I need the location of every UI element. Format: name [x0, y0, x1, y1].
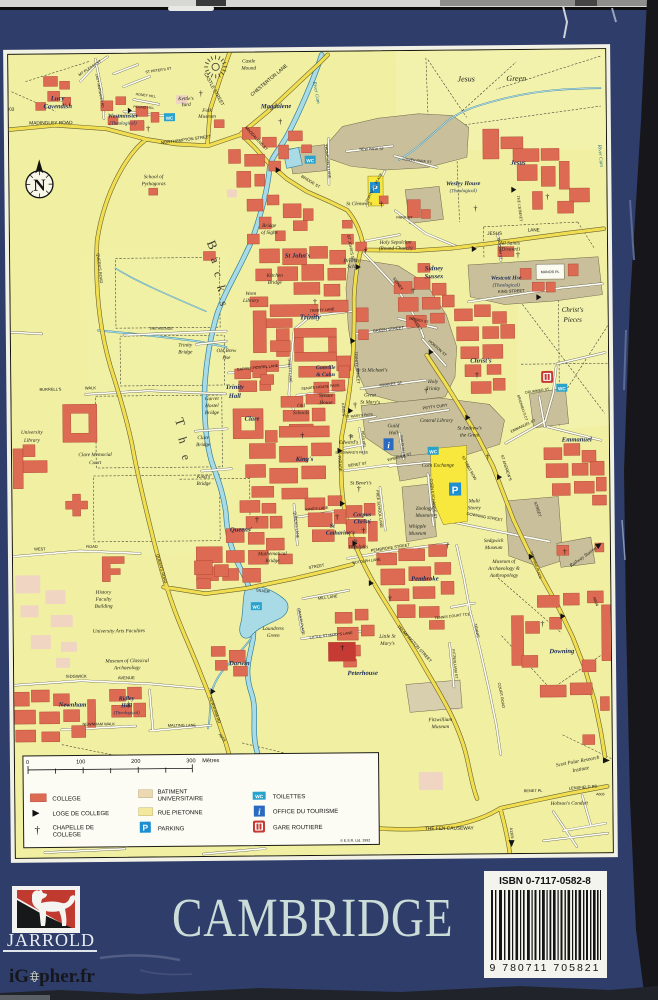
svg-text:COLLEGE: COLLEGE — [53, 832, 81, 838]
svg-text:Downing: Downing — [548, 648, 575, 655]
svg-text:†: † — [199, 89, 203, 98]
svg-text:Gonville: Gonville — [316, 365, 336, 371]
svg-text:History: History — [95, 590, 112, 596]
svg-text:Edward's: Edward's — [338, 440, 358, 446]
svg-text:House: House — [318, 400, 333, 406]
svg-text:BURRELL'S: BURRELL'S — [39, 387, 61, 392]
svg-text:†: † — [340, 643, 344, 652]
svg-text:†: † — [540, 619, 544, 628]
svg-text:Museum: Museum — [431, 724, 450, 730]
svg-text:LANE: LANE — [528, 227, 540, 232]
svg-text:Library: Library — [23, 438, 41, 444]
svg-text:SIDGWICK: SIDGWICK — [66, 674, 87, 679]
svg-text:Multi: Multi — [468, 498, 481, 504]
svg-text:(Disused): (Disused) — [500, 245, 521, 252]
svg-text:Jesus: Jesus — [457, 74, 474, 83]
svg-text:†: † — [300, 431, 304, 440]
svg-text:Museum: Museum — [197, 114, 216, 120]
svg-text:Castle: Castle — [242, 58, 256, 64]
svg-text:Wren: Wren — [245, 291, 256, 297]
svg-text:BENET PL: BENET PL — [524, 788, 544, 793]
svg-text:OFFICE DU TOURISME: OFFICE DU TOURISME — [273, 809, 338, 816]
svg-text:(Theological): (Theological) — [450, 189, 478, 194]
svg-text:St John's: St John's — [285, 252, 311, 259]
svg-text:Darwin: Darwin — [228, 660, 250, 667]
svg-text:PARADE: PARADE — [337, 455, 343, 472]
svg-text:†: † — [486, 452, 490, 461]
svg-text:†: † — [388, 594, 392, 603]
svg-text:WALK: WALK — [85, 385, 97, 390]
svg-text:†: † — [361, 526, 365, 535]
svg-text:Sedgwick: Sedgwick — [484, 538, 504, 544]
svg-text:Museum of: Museum of — [491, 558, 517, 565]
svg-text:Wesley House: Wesley House — [446, 181, 481, 187]
svg-text:Whipple: Whipple — [409, 524, 427, 530]
svg-text:Christ's: Christ's — [562, 306, 584, 314]
svg-text:University Arts Faculties: University Arts Faculties — [93, 628, 145, 634]
svg-text:St Andrew's: St Andrew's — [457, 425, 481, 431]
svg-text:Christi: Christi — [354, 519, 371, 525]
svg-text:Peterhouse: Peterhouse — [347, 670, 378, 677]
svg-text:Garret: Garret — [205, 396, 220, 402]
svg-text:Central Library: Central Library — [420, 418, 454, 424]
svg-text:Zoology: Zoology — [416, 506, 434, 512]
svg-text:A1303: A1303 — [8, 107, 15, 112]
svg-text:CHAPELLE DE: CHAPELLE DE — [53, 825, 94, 831]
svg-text:WEST: WEST — [34, 546, 46, 551]
svg-text:Lucy: Lucy — [50, 95, 65, 102]
svg-text:Corn Exchange: Corn Exchange — [422, 463, 455, 469]
svg-text:St Clement's: St Clement's — [346, 201, 372, 207]
svg-text:Green: Green — [506, 74, 526, 83]
svg-text:†: † — [146, 124, 150, 133]
svg-text:(Theological): (Theological) — [114, 711, 141, 716]
svg-text:Bridge: Bridge — [265, 558, 280, 564]
svg-text:Clare: Clare — [197, 435, 209, 441]
svg-text:Fitzwilliam: Fitzwilliam — [427, 717, 452, 723]
svg-text:Pieces: Pieces — [562, 316, 582, 324]
svg-text:†: † — [563, 547, 567, 556]
svg-text:MALTING LANE: MALTING LANE — [168, 722, 197, 727]
svg-text:WC: WC — [429, 449, 437, 454]
svg-text:N: N — [33, 176, 46, 195]
svg-text:Cavendish: Cavendish — [43, 103, 72, 110]
svg-text:Old Brew: Old Brew — [216, 348, 236, 354]
svg-text:ISBN 0-7117-0582-8: ISBN 0-7117-0582-8 — [499, 876, 591, 887]
svg-text:Great: Great — [364, 393, 377, 399]
svg-text:AVENUE: AVENUE — [118, 675, 135, 680]
svg-text:Hostel: Hostel — [204, 403, 219, 409]
svg-text:NEW PARK ST: NEW PARK ST — [359, 147, 384, 151]
svg-text:Guild: Guild — [387, 423, 399, 429]
svg-text:Archaeology: Archaeology — [113, 665, 141, 671]
svg-text:Laundress: Laundress — [261, 626, 284, 632]
svg-text:Hall: Hall — [388, 430, 399, 436]
svg-text:WC: WC — [255, 794, 264, 800]
svg-text:9 780711 705821: 9 780711 705821 — [490, 962, 601, 974]
svg-text:NEWNHAM WALK: NEWNHAM WALK — [82, 721, 115, 726]
svg-text:Hse: Hse — [221, 355, 231, 361]
svg-text:†: † — [475, 371, 479, 380]
svg-text:Archaeology &: Archaeology & — [487, 566, 521, 572]
svg-text:Sidney: Sidney — [425, 265, 443, 272]
svg-text:A603: A603 — [596, 792, 604, 796]
svg-text:Hall: Hall — [228, 393, 241, 400]
svg-text:Yard: Yard — [181, 102, 191, 108]
svg-text:†: † — [335, 513, 339, 522]
svg-text:ST EDWARD'S PASS: ST EDWARD'S PASS — [335, 450, 369, 454]
svg-text:BATIMENT: BATIMENT — [157, 789, 187, 795]
svg-text:(Theological): (Theological) — [493, 283, 521, 288]
svg-text:LOGE DE COLLEGE: LOGE DE COLLEGE — [52, 811, 109, 818]
svg-text:WC: WC — [166, 116, 174, 121]
svg-text:& Caius: & Caius — [316, 372, 335, 378]
svg-text:Clare: Clare — [245, 416, 260, 423]
svg-text:Trinity: Trinity — [225, 384, 244, 391]
svg-text:St: St — [330, 524, 335, 530]
svg-text:Museum: Museum — [408, 531, 427, 537]
svg-text:St Bene't's: St Bene't's — [350, 480, 371, 486]
svg-text:Christ's: Christ's — [470, 357, 492, 364]
svg-text:Westcott Hse: Westcott Hse — [491, 275, 522, 281]
svg-text:†: † — [446, 541, 450, 550]
svg-text:100: 100 — [76, 759, 85, 765]
svg-text:Bridge: Bridge — [178, 349, 193, 355]
svg-text:Queens': Queens' — [230, 526, 253, 533]
svg-text:of Sighs: of Sighs — [261, 229, 278, 236]
svg-text:Holy: Holy — [427, 379, 439, 385]
svg-text:King's: King's — [196, 474, 210, 480]
svg-text:JESUS: JESUS — [487, 231, 502, 236]
svg-text:MANOR PL: MANOR PL — [541, 270, 560, 274]
svg-text:Sussex: Sussex — [425, 273, 444, 280]
svg-text:Newnham: Newnham — [58, 702, 87, 709]
svg-text:GARE ROUTIERE: GARE ROUTIERE — [273, 825, 323, 831]
svg-text:Corpus: Corpus — [353, 512, 372, 518]
svg-text:UNIVERSITAIRE: UNIVERSITAIRE — [158, 796, 204, 802]
svg-text:Bridge: Bridge — [205, 410, 220, 416]
svg-text:Senate: Senate — [319, 393, 334, 399]
svg-text:WC: WC — [558, 386, 566, 391]
svg-text:Museum: Museum — [414, 513, 433, 519]
svg-text:Hall: Hall — [120, 703, 132, 709]
svg-text:Museum: Museum — [484, 545, 503, 551]
svg-text:†: † — [313, 297, 317, 306]
svg-text:†: † — [353, 401, 357, 410]
svg-text:PARK ST: PARK ST — [396, 216, 413, 220]
svg-text:Westminster: Westminster — [108, 113, 139, 119]
svg-text:Magdalene: Magdalene — [260, 103, 292, 110]
svg-text:RUE PIETONNE: RUE PIETONNE — [158, 810, 203, 816]
svg-text:Trinity: Trinity — [426, 386, 441, 392]
svg-text:Mary's: Mary's — [379, 641, 394, 647]
svg-text:Clare Memorial: Clare Memorial — [78, 452, 112, 458]
svg-text:Bridge: Bridge — [196, 442, 211, 448]
svg-text:Building: Building — [95, 604, 113, 610]
svg-text:Bridge: Bridge — [197, 481, 212, 487]
svg-text:Bridge: Bridge — [268, 280, 283, 286]
svg-text:Storey: Storey — [468, 505, 482, 511]
svg-text:Bridge: Bridge — [262, 223, 277, 229]
svg-text:P: P — [452, 485, 459, 496]
svg-text:Pembroke: Pembroke — [411, 575, 439, 582]
svg-text:†: † — [278, 117, 282, 126]
svg-text:the Great: the Great — [460, 432, 480, 438]
svg-text:Old: Old — [297, 403, 305, 409]
svg-text:Hobson's Conduit: Hobson's Conduit — [550, 800, 589, 806]
svg-text:COLLEGE: COLLEGE — [52, 796, 80, 802]
svg-text:200: 200 — [131, 759, 140, 765]
svg-text:Mound: Mound — [240, 65, 256, 71]
svg-text:Trinity: Trinity — [300, 312, 322, 321]
svg-text:ROAD: ROAD — [86, 544, 98, 549]
svg-text:Mètres: Mètres — [202, 758, 219, 764]
svg-text:Jesus: Jesus — [510, 160, 527, 167]
svg-text:Library: Library — [242, 298, 260, 304]
svg-text:St Michael's: St Michael's — [362, 367, 388, 373]
svg-text:†: † — [411, 286, 415, 295]
svg-text:Court: Court — [89, 460, 102, 466]
svg-text:THE AVENUE: THE AVENUE — [149, 327, 173, 331]
svg-text:WC: WC — [306, 158, 314, 163]
svg-text:St Mary's: St Mary's — [360, 399, 380, 405]
svg-text:P: P — [142, 823, 148, 833]
svg-text:300: 300 — [186, 758, 195, 764]
svg-text:TOILETTES: TOILETTES — [273, 794, 306, 800]
svg-text:Green: Green — [267, 633, 280, 639]
svg-text:Sch.: Sch. — [347, 264, 356, 270]
svg-text:King's: King's — [295, 456, 314, 463]
svg-text:Emmanuel: Emmanuel — [561, 436, 592, 443]
svg-text:Museum of Classical: Museum of Classical — [104, 657, 149, 664]
svg-text:Schools: Schools — [293, 410, 309, 416]
svg-text:Ridley: Ridley — [118, 696, 135, 702]
svg-text:Botolph's: Botolph's — [349, 544, 369, 550]
svg-text:Pythagoras: Pythagoras — [141, 181, 166, 187]
svg-text:(Theological): (Theological) — [109, 121, 137, 126]
svg-text:University: University — [21, 430, 43, 436]
svg-text:†: † — [545, 192, 549, 201]
svg-text:Little St: Little St — [378, 634, 396, 640]
svg-text:Anthropology: Anthropology — [489, 573, 519, 579]
svg-text:0: 0 — [26, 760, 29, 766]
svg-text:†: † — [35, 825, 41, 837]
svg-text:Kitchen: Kitchen — [266, 273, 284, 279]
svg-text:PARKING: PARKING — [158, 826, 185, 832]
svg-text:Mathematical: Mathematical — [257, 551, 287, 557]
svg-text:WC: WC — [253, 605, 261, 610]
svg-text:School of: School of — [144, 173, 165, 180]
svg-text:†: † — [255, 515, 259, 524]
svg-text:THE FEN CAUSEWAY: THE FEN CAUSEWAY — [425, 826, 475, 832]
svg-text:Catharine's: Catharine's — [326, 530, 356, 536]
svg-text:MADINGLEY ROAD: MADINGLEY ROAD — [29, 120, 73, 126]
svg-text:†: † — [364, 246, 368, 255]
svg-text:†: † — [473, 204, 477, 213]
svg-text:(Round Church): (Round Church) — [379, 245, 413, 252]
svg-text:Faculty: Faculty — [95, 597, 113, 603]
svg-text:†: † — [379, 200, 383, 209]
svg-text:Trinity: Trinity — [178, 342, 193, 348]
